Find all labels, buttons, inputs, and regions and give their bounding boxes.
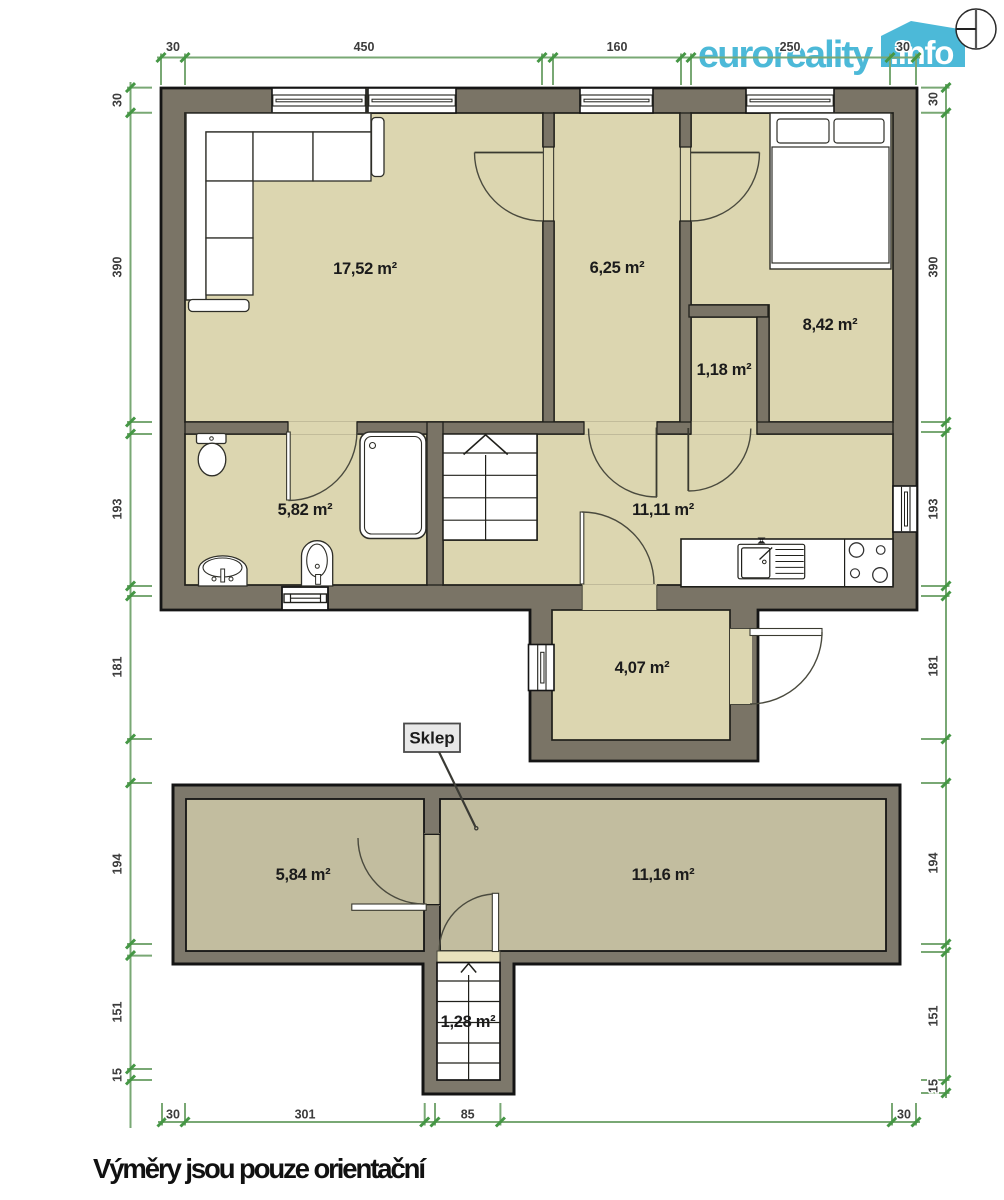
svg-text:193: 193 [927, 499, 941, 520]
svg-text:Výměry jsou pouze orientační: Výměry jsou pouze orientační [93, 1153, 427, 1184]
svg-text:17,52 m²: 17,52 m² [333, 260, 397, 278]
svg-text:8,42 m²: 8,42 m² [803, 316, 859, 334]
svg-text:5,84 m²: 5,84 m² [276, 866, 332, 884]
svg-text:5,82 m²: 5,82 m² [278, 501, 334, 519]
svg-text:15: 15 [927, 1079, 941, 1093]
svg-text:194: 194 [927, 853, 941, 874]
svg-text:4,07 m²: 4,07 m² [615, 659, 671, 677]
svg-text:151: 151 [111, 1002, 125, 1023]
svg-text:30: 30 [166, 40, 180, 54]
svg-text:11,16 m²: 11,16 m² [632, 866, 696, 884]
svg-text:390: 390 [111, 257, 125, 278]
svg-text:250: 250 [780, 40, 801, 54]
svg-text:Sklep: Sklep [409, 729, 454, 748]
svg-text:1,28 m²: 1,28 m² [441, 1013, 497, 1031]
svg-text:301: 301 [295, 1108, 316, 1122]
svg-text:181: 181 [111, 657, 125, 678]
svg-text:85: 85 [461, 1108, 475, 1122]
svg-text:30: 30 [927, 92, 941, 106]
svg-text:15: 15 [111, 1068, 125, 1082]
svg-text:30: 30 [896, 40, 910, 54]
svg-text:30: 30 [111, 93, 125, 107]
svg-text:11,11 m²: 11,11 m² [632, 501, 695, 519]
svg-text:181: 181 [927, 656, 941, 677]
svg-text:194: 194 [111, 854, 125, 875]
svg-text:151: 151 [927, 1006, 941, 1027]
svg-text:193: 193 [111, 499, 125, 520]
svg-text:30: 30 [897, 1108, 911, 1122]
svg-text:390: 390 [927, 257, 941, 278]
svg-text:450: 450 [354, 40, 375, 54]
svg-text:1,18 m²: 1,18 m² [697, 361, 753, 379]
svg-text:30: 30 [166, 1108, 180, 1122]
svg-text:6,25 m²: 6,25 m² [590, 259, 646, 277]
svg-text:160: 160 [607, 40, 628, 54]
